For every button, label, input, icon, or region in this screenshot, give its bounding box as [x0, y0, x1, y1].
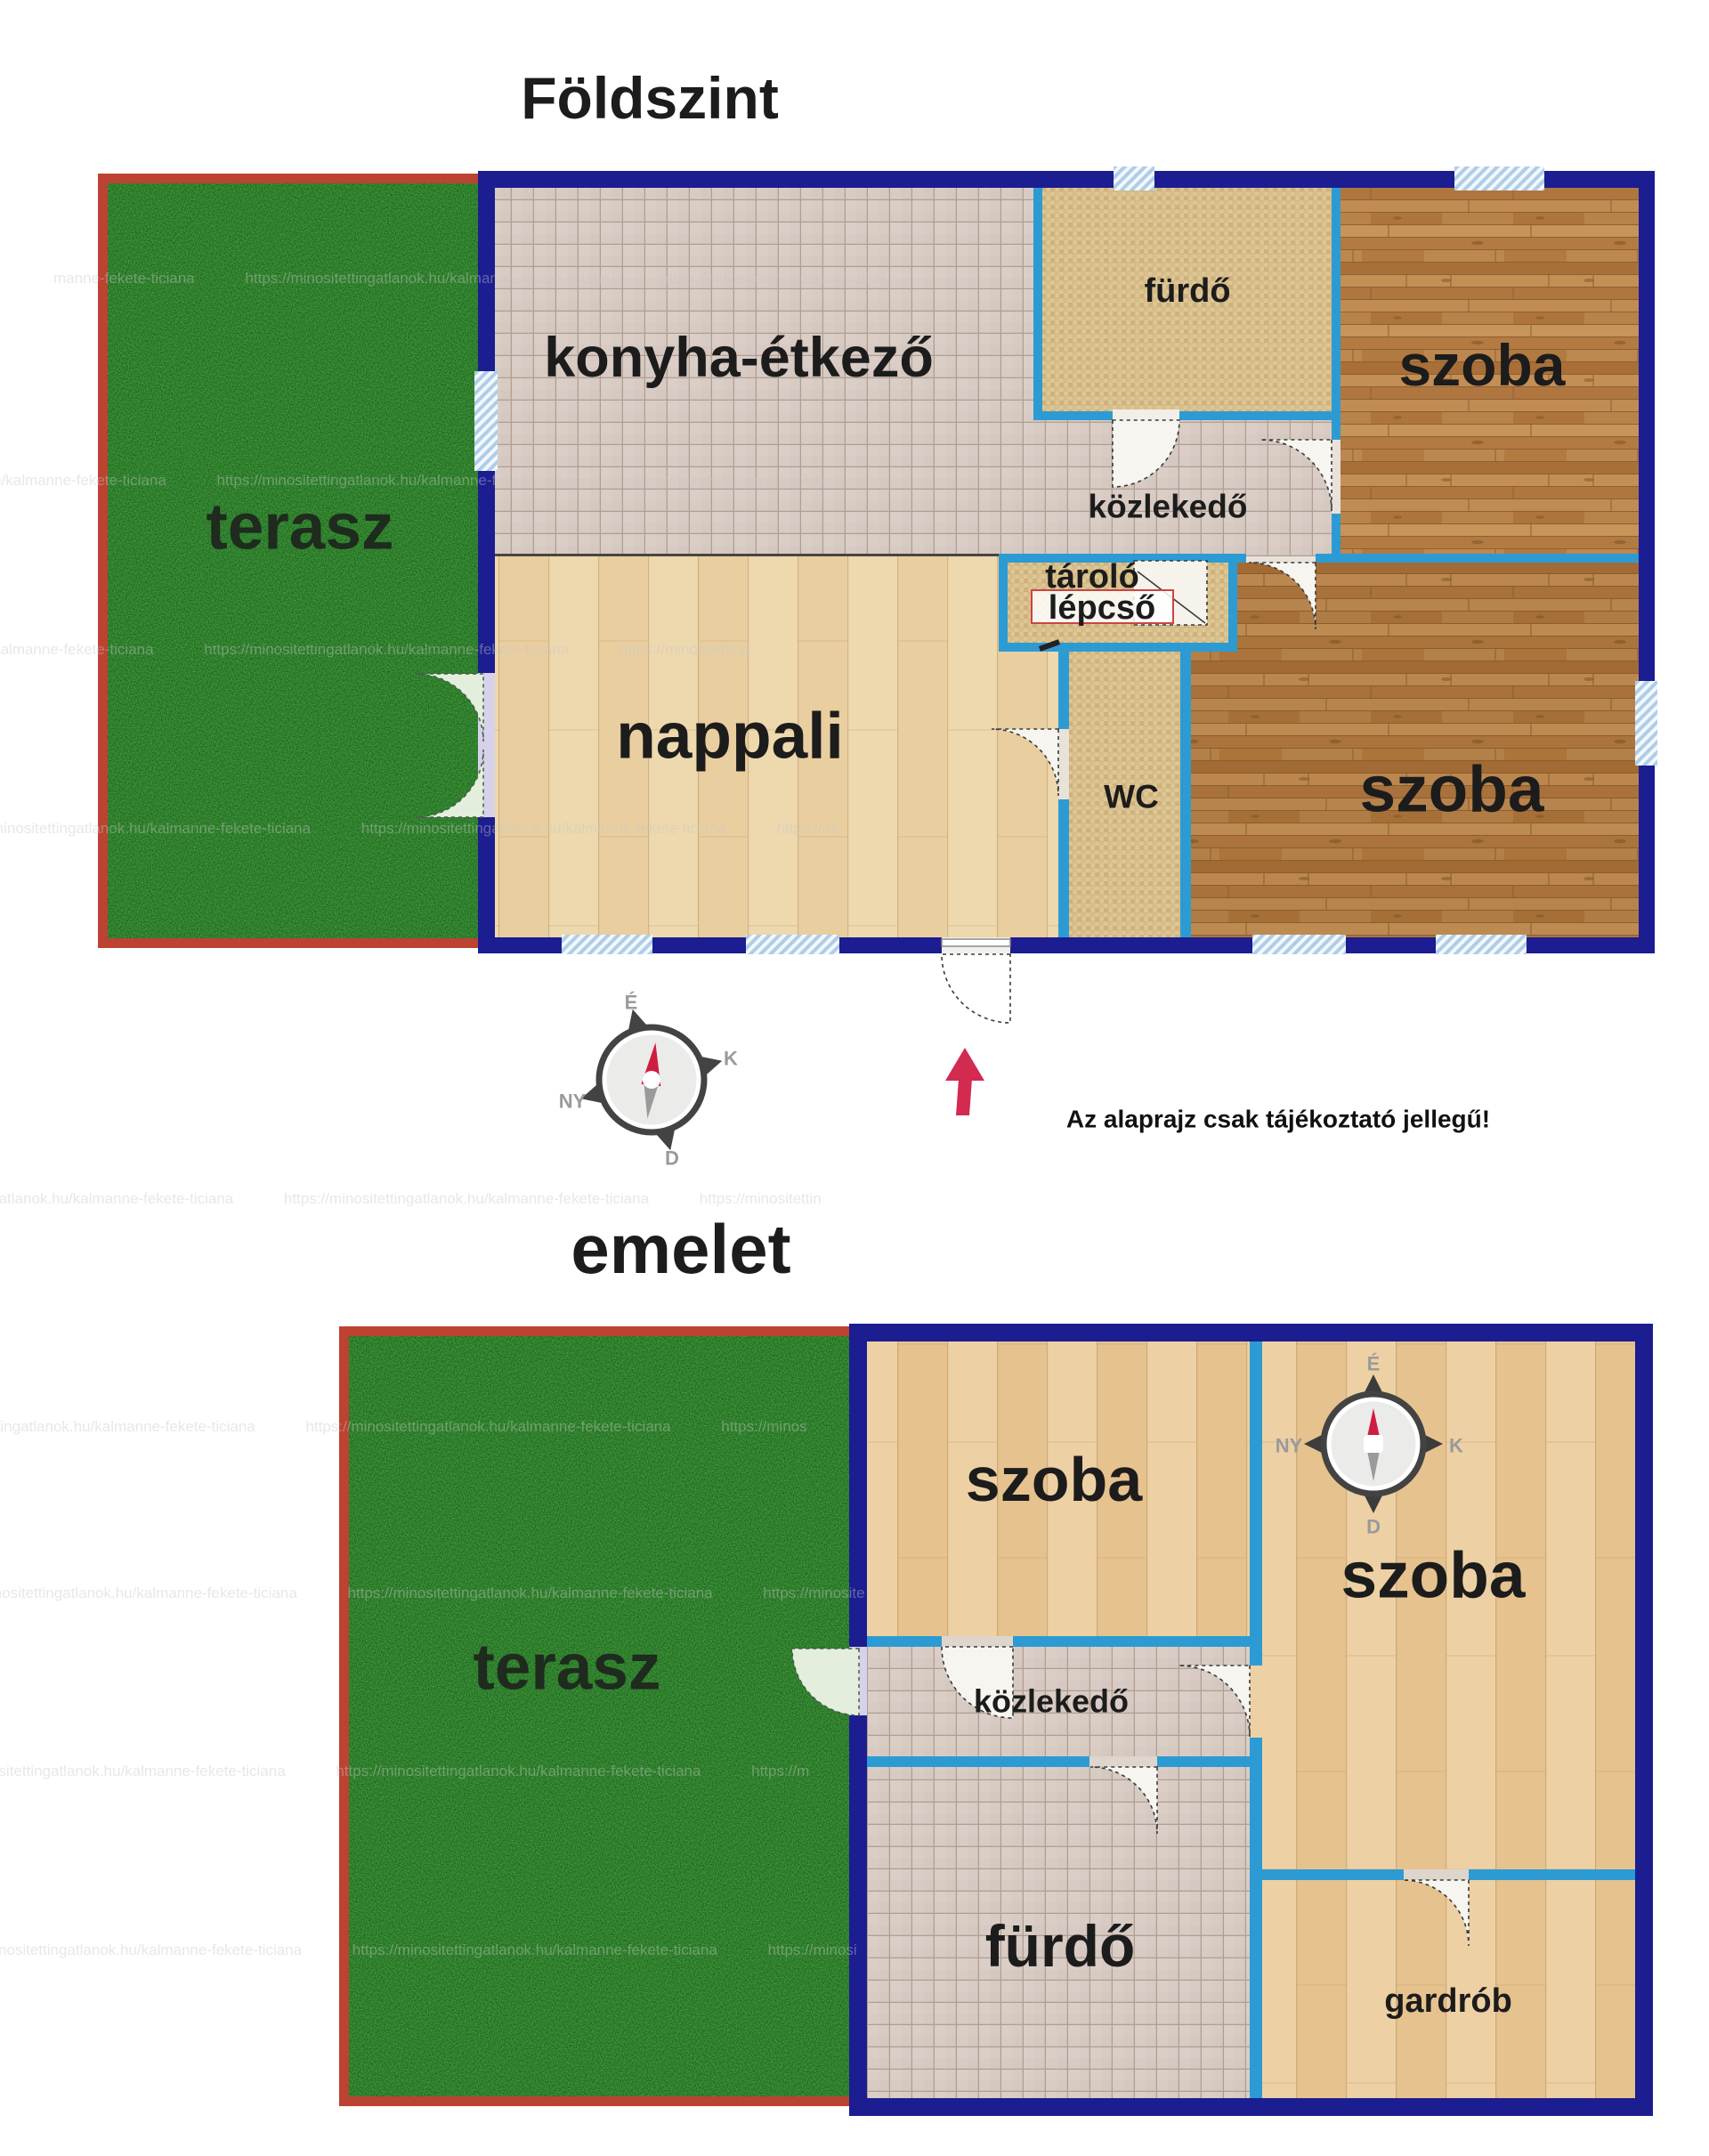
svg-text:minositettingatlanok.hu/kalman: minositettingatlanok.hu/kalmanne-fekete-… — [0, 820, 838, 837]
svg-text:terasz: terasz — [206, 491, 393, 563]
svg-text:D: D — [1366, 1516, 1381, 1538]
svg-text:K: K — [724, 1048, 738, 1070]
svg-text:minositettingatlanok.hu/kalman: minositettingatlanok.hu/kalmanne-fekete-… — [0, 1941, 857, 1958]
svg-text:nappali: nappali — [616, 701, 844, 773]
svg-text:NY: NY — [1276, 1435, 1303, 1457]
svg-text:WC: WC — [1104, 779, 1159, 815]
svg-text:sitettingatlanok.hu/kalmanne-f: sitettingatlanok.hu/kalmanne-fekete-tici… — [0, 1190, 822, 1207]
svg-text:NY: NY — [559, 1090, 587, 1113]
svg-text:D: D — [665, 1147, 679, 1170]
svg-text:Földszint: Földszint — [521, 65, 779, 131]
svg-text:szoba: szoba — [1341, 1540, 1527, 1612]
svg-text:Az alaprajz csak tájékoztató j: Az alaprajz csak tájékoztató jellegű! — [1066, 1106, 1490, 1133]
svg-text:közlekedő: közlekedő — [974, 1683, 1129, 1720]
svg-text:szoba: szoba — [966, 1445, 1143, 1514]
svg-text:gardrób: gardrób — [1384, 1982, 1512, 2020]
svg-text:ok.hu/kalmanne-fekete-ticiana: ok.hu/kalmanne-fekete-ticiana https://mi… — [0, 472, 832, 489]
svg-text:manne-fekete-ticiana: manne-fekete-ticiana https://minositetti… — [53, 270, 885, 287]
svg-text:szoba: szoba — [1398, 332, 1566, 398]
svg-text:/minositettingatlanok.hu/kalma: /minositettingatlanok.hu/kalmanne-fekete… — [0, 1585, 865, 1601]
svg-text:fürdő: fürdő — [1144, 272, 1230, 310]
svg-text:közlekedő: közlekedő — [1089, 489, 1248, 525]
svg-text:fürdő: fürdő — [985, 1913, 1136, 1979]
svg-text:K: K — [1449, 1435, 1463, 1457]
svg-text:szoba: szoba — [1360, 754, 1545, 826]
svg-text:emelet: emelet — [571, 1210, 790, 1288]
svg-text:É: É — [625, 992, 638, 1014]
svg-text:terasz: terasz — [473, 1632, 660, 1704]
svg-text:konyha-étkező: konyha-étkező — [544, 327, 934, 389]
svg-text:É: É — [1367, 1353, 1381, 1375]
svg-text:ngatlanok.hu/kalmanne-fekete-t: ngatlanok.hu/kalmanne-fekete-ticiana htt… — [0, 641, 750, 658]
svg-text:s://minositettingatlanok.hu/ka: s://minositettingatlanok.hu/kalmanne-fek… — [0, 1418, 807, 1435]
svg-text:ttps://minositettingatlanok.hu: ttps://minositettingatlanok.hu/kalmanne-… — [0, 1763, 809, 1779]
svg-text:lépcső: lépcső — [1049, 589, 1155, 627]
